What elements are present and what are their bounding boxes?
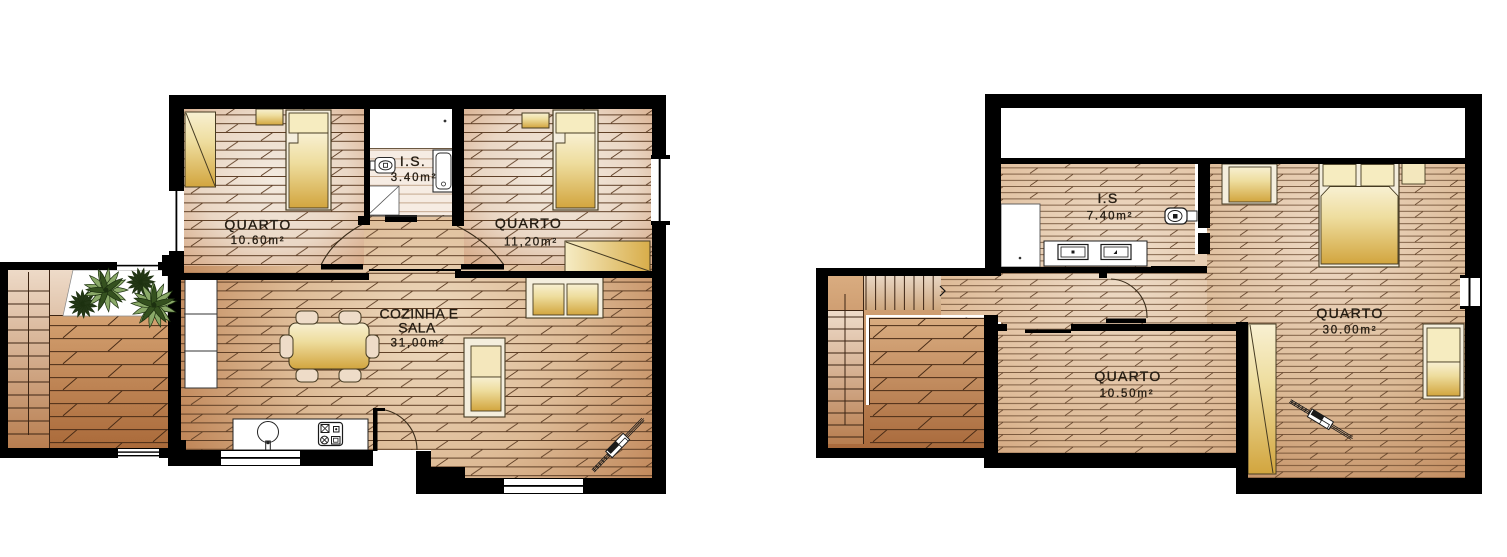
svg-text:3.40m²: 3.40m² — [391, 172, 438, 184]
svg-text:10.60m²: 10.60m² — [231, 235, 286, 247]
svg-text:QUARTO: QUARTO — [1316, 305, 1383, 321]
svg-text:30.00m²: 30.00m² — [1323, 325, 1378, 337]
svg-text:QUARTO: QUARTO — [224, 217, 291, 233]
svg-text:I.S: I.S — [1097, 190, 1118, 206]
svg-text:QUARTO: QUARTO — [495, 215, 562, 231]
svg-text:11,20m²: 11,20m² — [504, 237, 558, 249]
svg-text:QUARTO: QUARTO — [1094, 368, 1161, 384]
svg-text:10.50m²: 10.50m² — [1100, 388, 1155, 400]
svg-text:SALA: SALA — [398, 320, 436, 336]
svg-text:7.40m²: 7.40m² — [1087, 211, 1134, 223]
svg-text:31,00m²: 31,00m² — [391, 338, 446, 350]
svg-text:I.S.: I.S. — [400, 153, 426, 169]
